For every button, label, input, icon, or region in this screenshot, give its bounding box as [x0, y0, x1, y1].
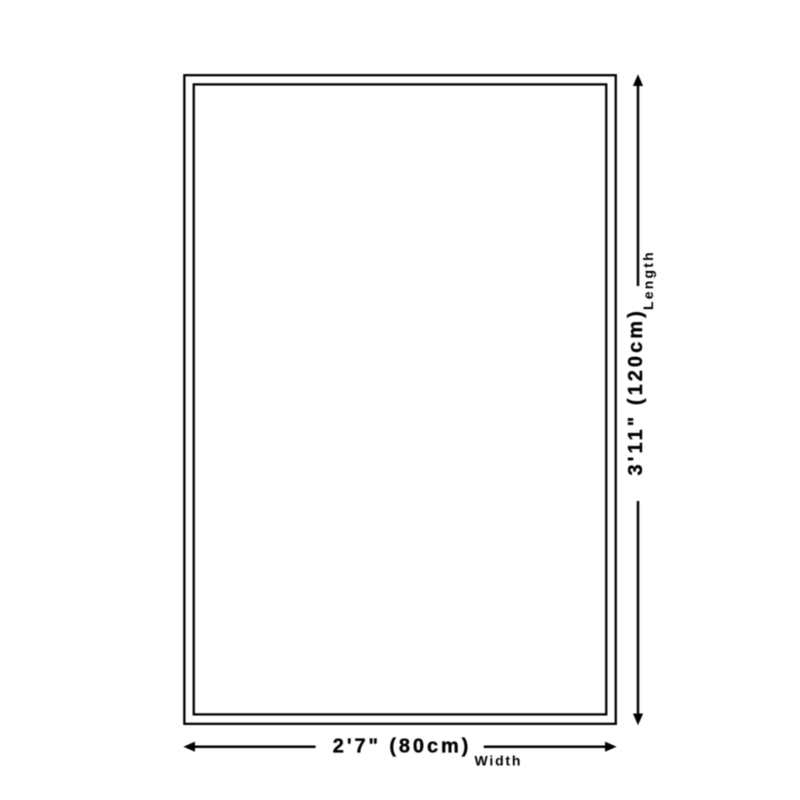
- svg-text:2'7" (80cm): 2'7" (80cm): [333, 736, 471, 758]
- svg-text:3'11" (120cm): 3'11" (120cm): [625, 308, 647, 475]
- svg-text:Width: Width: [475, 752, 523, 768]
- svg-text:Length: Length: [640, 250, 656, 310]
